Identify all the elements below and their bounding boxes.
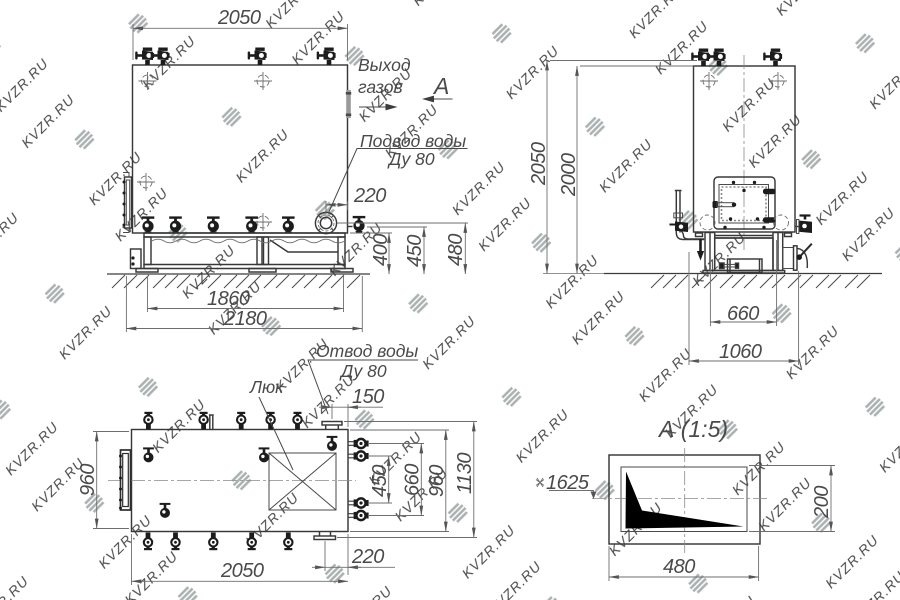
svg-text:400: 400: [370, 234, 392, 266]
svg-text:660: 660: [727, 303, 759, 325]
svg-text:Выход: Выход: [358, 55, 411, 75]
svg-text:А: А: [432, 73, 449, 99]
svg-text:660: 660: [402, 464, 424, 496]
svg-text:480: 480: [445, 234, 467, 266]
svg-text:150: 150: [352, 386, 384, 408]
svg-text:2050: 2050: [220, 560, 264, 582]
svg-text:А (1:5): А (1:5): [657, 416, 728, 442]
svg-text:450: 450: [369, 465, 391, 497]
svg-text:220: 220: [351, 546, 384, 568]
svg-text:Ду 80: Ду 80: [339, 361, 387, 381]
svg-text:1860: 1860: [207, 288, 250, 310]
svg-text:960: 960: [426, 465, 448, 497]
svg-text:2180: 2180: [223, 308, 267, 330]
svg-text:960: 960: [77, 464, 99, 496]
svg-text:1130: 1130: [454, 453, 476, 494]
svg-text:Ду 80: Ду 80: [387, 149, 435, 169]
svg-text:200: 200: [811, 486, 833, 519]
svg-text:Люк: Люк: [249, 377, 284, 397]
svg-text:2050: 2050: [217, 7, 261, 29]
svg-text:2000: 2000: [558, 153, 580, 197]
svg-text:220: 220: [353, 185, 386, 207]
svg-text:450: 450: [404, 235, 426, 267]
svg-text:Отвод воды: Отвод воды: [316, 341, 418, 361]
svg-text:1060: 1060: [719, 341, 762, 363]
svg-text:газов: газов: [358, 77, 403, 97]
svg-text:480: 480: [663, 556, 695, 578]
svg-text:2050: 2050: [528, 142, 550, 186]
